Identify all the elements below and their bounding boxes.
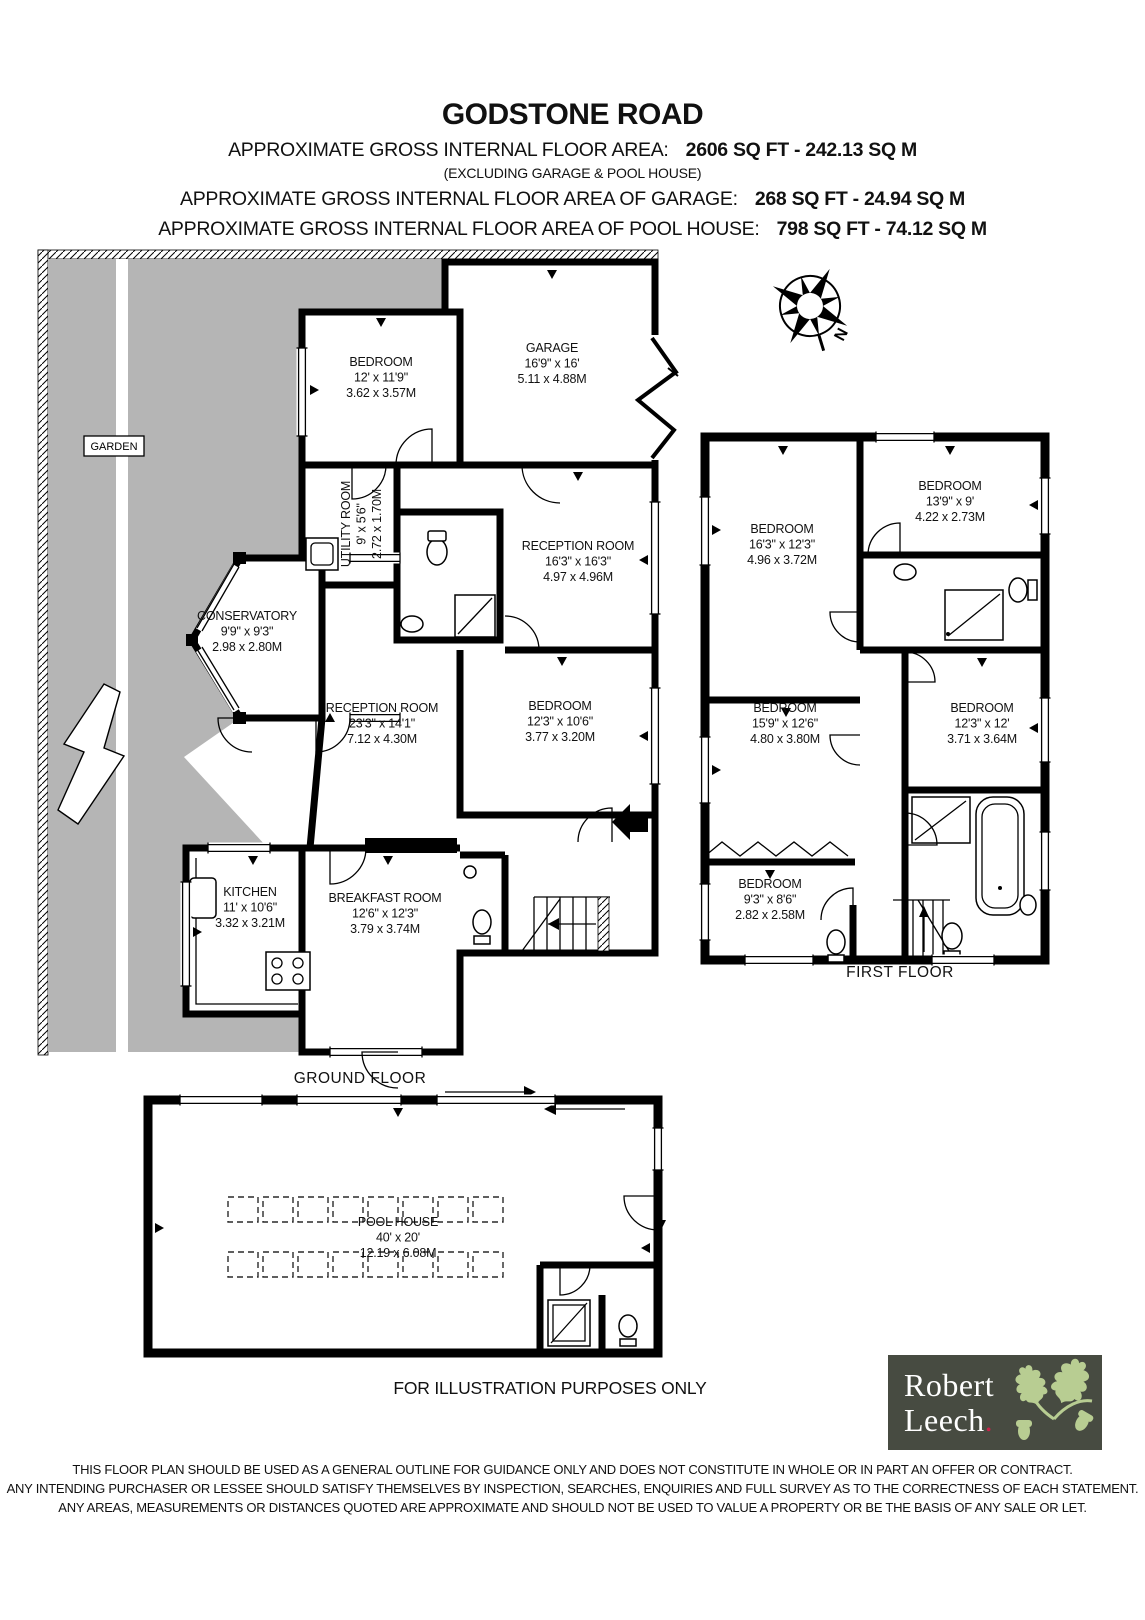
room-label-bedroom-ff-5: BEDROOM9'3" x 8'6"2.82 x 2.58M (735, 877, 805, 922)
shower-room-fixtures-gf (401, 531, 495, 637)
windows (180, 348, 1051, 1170)
compass-rose-icon (751, 247, 870, 366)
stairs-icon (522, 897, 610, 951)
disclaimer-line-2: ANY INTENDING PURCHASER OR LESSEE SHOULD… (0, 1481, 1145, 1496)
room-label-bedroom-gf-2: BEDROOM12'3" x 10'6"3.77 x 3.20M (525, 699, 595, 744)
room-label-breakfast-room: BREAKFAST ROOM12'6" x 12'3"3.79 x 3.74M (329, 891, 442, 936)
oak-leaves-icon (996, 1357, 1100, 1447)
utility-sink-icon (306, 538, 338, 570)
garden-path (116, 259, 128, 1052)
pool-dashed-grid (228, 1197, 503, 1277)
chimney-breast (365, 838, 457, 853)
room-label-kitchen: KITCHEN11' x 10'6"3.32 x 3.21M (215, 885, 285, 930)
room-label-reception-room-1: RECEPTION ROOM16'3" x 16'3"4.97 x 4.96M (522, 539, 634, 584)
floorplan-page: GODSTONE ROAD APPROXIMATE GROSS INTERNAL… (0, 0, 1145, 1620)
logo-line2: Leech. (904, 1403, 994, 1438)
ground-floor-caption: GROUND FLOOR (294, 1070, 427, 1087)
wc-fixtures-gf (464, 866, 491, 944)
room-label-bedroom-gf-1: BEDROOM12' x 11'9"3.62 x 3.57M (346, 355, 416, 400)
room-label-bedroom-ff-1: BEDROOM16'3" x 12'3"4.96 x 3.72M (747, 522, 817, 567)
room-labels: BEDROOM12' x 11'9"3.62 x 3.57MGARAGE16'9… (197, 341, 1017, 1260)
bathroom-fixtures-ff (912, 797, 1036, 958)
svg-text:GARDEN: GARDEN (90, 441, 137, 453)
robert-leech-logo: Robert Leech. (888, 1355, 1102, 1450)
wc-toilet-ff (827, 930, 845, 962)
room-label-bedroom-ff-4: BEDROOM12'3" x 12'3.71 x 3.64M (947, 701, 1017, 746)
room-label-garage: GARAGE16'9" x 16'5.11 x 4.88M (518, 341, 587, 386)
logo-dot: . (985, 1402, 994, 1438)
first-floor-caption: FIRST FLOOR (846, 964, 954, 981)
disclaimer-line-3: ANY AREAS, MEASUREMENTS OR DISTANCES QUO… (0, 1500, 1145, 1515)
room-label-bedroom-ff-3: BEDROOM15'9" x 12'6"4.80 x 3.80M (750, 701, 820, 746)
disclaimer-line-1: THIS FLOOR PLAN SHOULD BE USED AS A GENE… (0, 1462, 1145, 1477)
north-label: N (832, 326, 852, 344)
wardrobe-icon (705, 842, 848, 856)
illustration-note: FOR ILLUSTRATION PURPOSES ONLY (0, 1378, 1100, 1399)
garden-label: GARDEN (84, 436, 144, 456)
pool-wc-fixtures (548, 1300, 637, 1346)
disclaimer: THIS FLOOR PLAN SHOULD BE USED AS A GENE… (0, 1458, 1145, 1515)
room-label-pool-house: POOL HOUSE40' x 20'12.19 x 6.08M (358, 1215, 438, 1260)
shower-room-fixtures-ff (894, 564, 1037, 640)
entrance-arrow-icon (612, 804, 648, 840)
room-label-bedroom-ff-2: BEDROOM13'9" x 9'4.22 x 2.73M (915, 479, 985, 524)
